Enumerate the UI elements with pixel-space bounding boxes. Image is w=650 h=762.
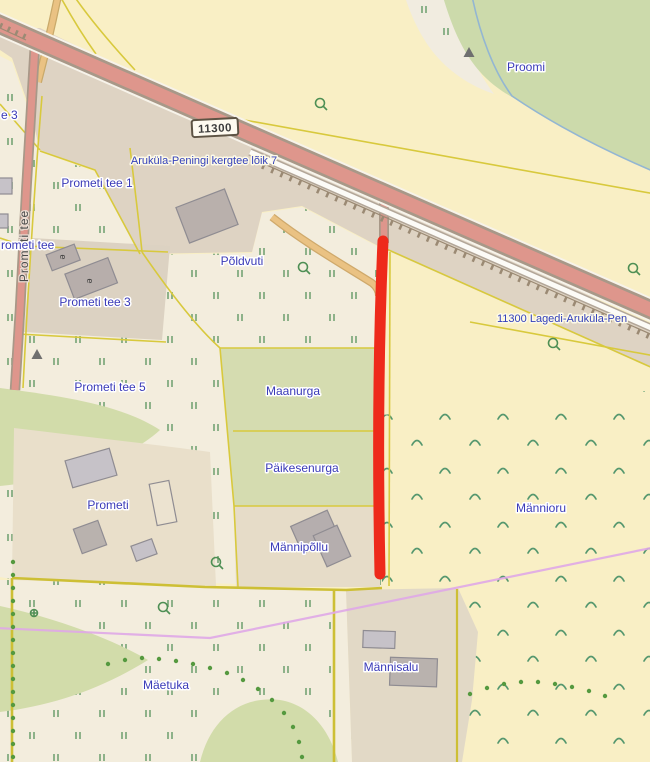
road-shield-ref: 11300 (198, 122, 232, 136)
building-mark-2: e (85, 278, 95, 283)
road-label-lagedi: 11300 Lagedi-Aruküla-Pen (497, 313, 627, 325)
place-label-maanurga: Maanurga (266, 384, 320, 398)
road-label-kergtee: Aruküla-Peningi kergtee lõik 7 (131, 155, 277, 167)
place-label-prometi-tee-3: Prometi tee 3 (59, 295, 131, 309)
place-label-mannisalu: Männisalu (364, 660, 419, 674)
place-label-prometi-tee-1: Prometi tee 1 (61, 176, 133, 190)
place-label-maetuka: Mäetuka (143, 678, 189, 692)
road-shield: 11300 (192, 118, 239, 137)
place-label-proomi: Proomi (507, 60, 545, 74)
map-svg: e e 11300 Prometi tee Aruküla-Pening (0, 0, 650, 762)
place-label-prometi-tee-partial: rometi tee (1, 238, 55, 252)
building-mark-1: e (58, 254, 68, 259)
grass-area-maanurga (220, 348, 380, 506)
place-label-poldvuti: Põldvuti (221, 254, 264, 268)
place-label-prometi-tee-5: Prometi tee 5 (74, 380, 146, 394)
place-label-tee3-partial: e 3 (1, 108, 18, 122)
spring-icon (31, 610, 38, 617)
place-label-mannioru: Männioru (516, 501, 566, 515)
place-label-mannipollu: Männipõllu (270, 540, 328, 554)
place-label-prometi: Prometi (87, 498, 128, 512)
highlighted-route[interactable] (379, 241, 383, 574)
map-canvas[interactable]: e e 11300 Prometi tee Aruküla-Pening (0, 0, 650, 762)
place-label-paikesenurga: Päikesenurga (265, 461, 339, 475)
